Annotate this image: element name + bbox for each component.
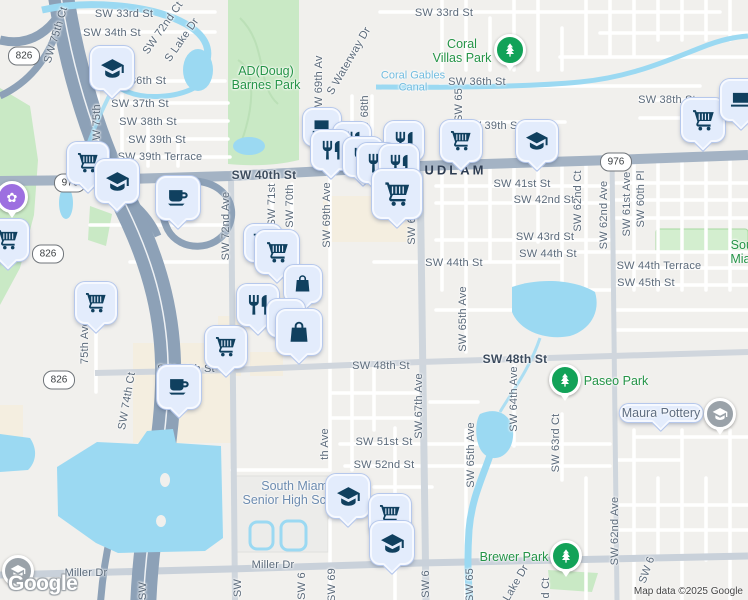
marker-shopping-bag[interactable] [284, 265, 322, 303]
park-marker[interactable] [550, 540, 582, 572]
school-icon [100, 56, 125, 81]
shopping-cart-icon [449, 129, 473, 153]
map-attribution: Map data ©2025 Google [634, 586, 743, 597]
marker-school[interactable] [370, 521, 414, 565]
poi-marker-purple[interactable]: ✿ [0, 181, 28, 213]
marker-shopping-bag[interactable] [276, 309, 322, 355]
electronics-icon [729, 88, 748, 112]
school-icon [712, 406, 728, 422]
marker-coffee[interactable] [156, 176, 200, 220]
shopping-bag-icon [286, 319, 312, 345]
shopping-cart-icon [265, 240, 290, 265]
park-marker[interactable] [494, 34, 526, 66]
shopping-cart-icon [691, 108, 716, 133]
park-marker[interactable] [549, 364, 581, 396]
shopping-cart-icon [383, 180, 412, 209]
school-icon [336, 484, 361, 509]
marker-coffee[interactable] [157, 365, 201, 409]
coffee-icon [166, 186, 191, 211]
poi-marker-gray[interactable] [704, 398, 736, 430]
school-icon [380, 531, 405, 556]
marker-school[interactable] [90, 46, 134, 90]
markers-layer: ✿ [0, 0, 748, 600]
shopping-cart-icon [0, 228, 20, 252]
flower-icon: ✿ [7, 191, 18, 204]
marker-electronics[interactable] [720, 79, 748, 121]
marker-shopping-cart[interactable] [372, 169, 422, 219]
school-icon [525, 129, 549, 153]
marker-shopping-cart[interactable] [75, 282, 117, 324]
marker-school[interactable] [95, 159, 139, 203]
tree-icon [502, 42, 518, 58]
restaurant-icon [320, 139, 342, 161]
school-icon [105, 169, 130, 194]
marker-shopping-cart[interactable] [440, 120, 482, 162]
marker-school[interactable] [326, 474, 370, 518]
google-logo[interactable]: Google [8, 572, 77, 596]
shopping-cart-icon [214, 335, 238, 359]
marker-shopping-cart[interactable] [0, 219, 29, 261]
marker-shopping-cart[interactable] [681, 98, 725, 142]
map-canvas[interactable]: SW 33rd StSW 33rd StSW 34th St36th StSW … [0, 0, 748, 600]
shopping-cart-icon [84, 291, 108, 315]
coffee-icon [167, 375, 192, 400]
tree-icon [558, 548, 574, 564]
marker-school[interactable] [516, 120, 558, 162]
shopping-bag-icon [292, 273, 313, 294]
tree-icon [557, 372, 573, 388]
marker-shopping-cart[interactable] [205, 326, 247, 368]
